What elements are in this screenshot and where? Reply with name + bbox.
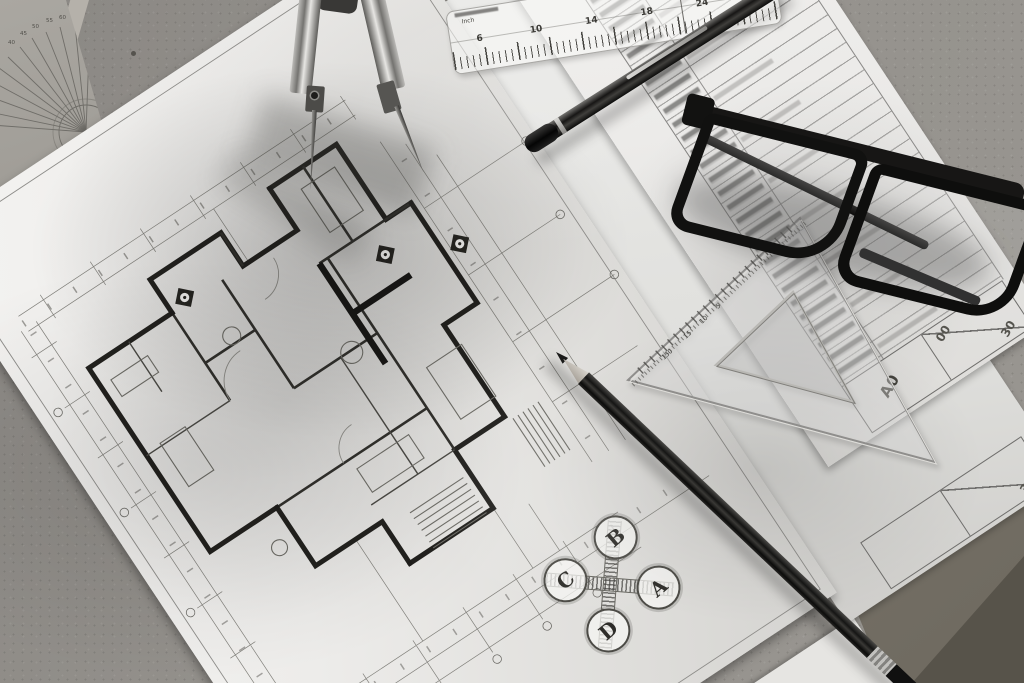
- compass-needle-right: [394, 105, 426, 174]
- ruler-number: 10: [529, 24, 543, 36]
- protractor-number: 45: [20, 31, 27, 37]
- sheet-size-label: A0: [876, 371, 904, 401]
- compass-knee-left: [305, 85, 325, 112]
- ruler-number: 24: [695, 0, 709, 10]
- protractor-number: 55: [46, 18, 53, 24]
- compass-screw: [311, 92, 318, 99]
- photo-desk-scene: 30 A0 00 30: [0, 0, 1024, 683]
- protractor-number: 60: [59, 15, 66, 21]
- compass-leg-left: [289, 0, 322, 95]
- under-sheet-number: 30: [1017, 474, 1024, 495]
- compass-leg-right: [358, 0, 405, 92]
- drafting-compass: [270, 0, 460, 220]
- desk-speck: [131, 51, 136, 56]
- compass-needle-left: [308, 110, 317, 190]
- compass-hinge: [316, 0, 360, 15]
- ruler-unit-label: Inch: [461, 17, 475, 26]
- protractor-number: 50: [32, 24, 39, 30]
- protractor-number: 40: [8, 40, 15, 46]
- door-arcs: [178, 258, 390, 497]
- ruler-number: 18: [640, 7, 654, 19]
- ruler-number: 14: [585, 15, 599, 27]
- ruler-number: 6: [476, 33, 484, 44]
